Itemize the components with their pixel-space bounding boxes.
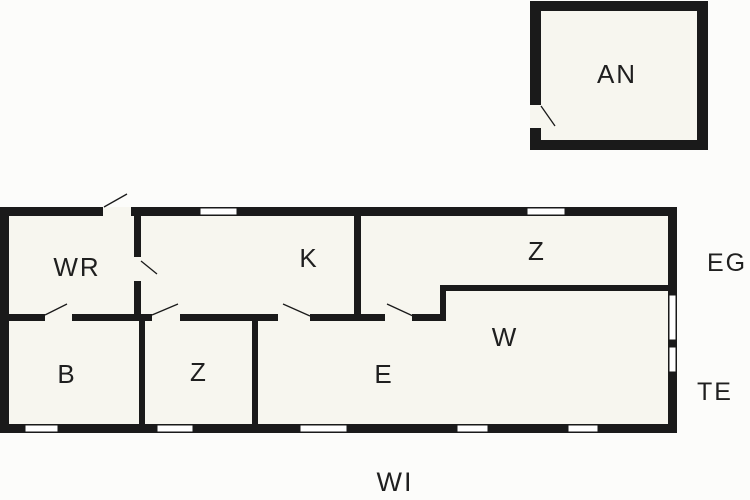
interior-wall-z-w (440, 285, 668, 291)
interior-wall-z-e (252, 321, 258, 424)
annex-wall-top (530, 1, 708, 11)
main-building: WR K Z B Z E W (0, 194, 677, 433)
window-top-1 (200, 208, 237, 215)
annex-door-gap (530, 105, 541, 128)
room-label-wr: WR (53, 252, 100, 282)
room-label-an: AN (597, 59, 637, 89)
room-label-z-bottom: Z (190, 357, 208, 387)
floor-plan-canvas: AN (0, 0, 750, 500)
window-right-2 (669, 347, 676, 372)
window-right-1 (669, 295, 676, 340)
interior-wall-b-z (139, 321, 145, 424)
floor-plan: AN (0, 0, 750, 500)
door-gap-wr-k (134, 257, 141, 281)
door-gap-wr-entrance (103, 207, 131, 216)
interior-wall-k-z (354, 216, 361, 314)
annex-wall-right (697, 1, 708, 150)
room-label-w: W (492, 322, 519, 352)
room-label-z-top: Z (528, 236, 546, 266)
room-label-b: B (57, 359, 76, 389)
window-bottom-5 (568, 425, 598, 432)
door-gap-b (45, 314, 72, 321)
room-label-e: E (374, 359, 393, 389)
label-wi: WI (377, 467, 414, 497)
annex-building: AN (530, 1, 708, 150)
room-label-k: K (299, 243, 318, 273)
annex-wall-bottom (530, 140, 708, 150)
door-gap-z-top (385, 314, 412, 321)
door-gap-k-e (278, 314, 310, 321)
window-bottom-3 (300, 425, 347, 432)
label-eg: EG (707, 249, 747, 277)
window-bottom-1 (25, 425, 58, 432)
door-swing-wr-entrance (104, 194, 127, 207)
door-gap-z-bottom (152, 314, 180, 321)
main-wall-top (0, 207, 677, 216)
window-bottom-4 (457, 425, 488, 432)
label-te: TE (697, 378, 733, 406)
window-bottom-2 (157, 425, 193, 432)
window-top-2 (527, 208, 565, 215)
